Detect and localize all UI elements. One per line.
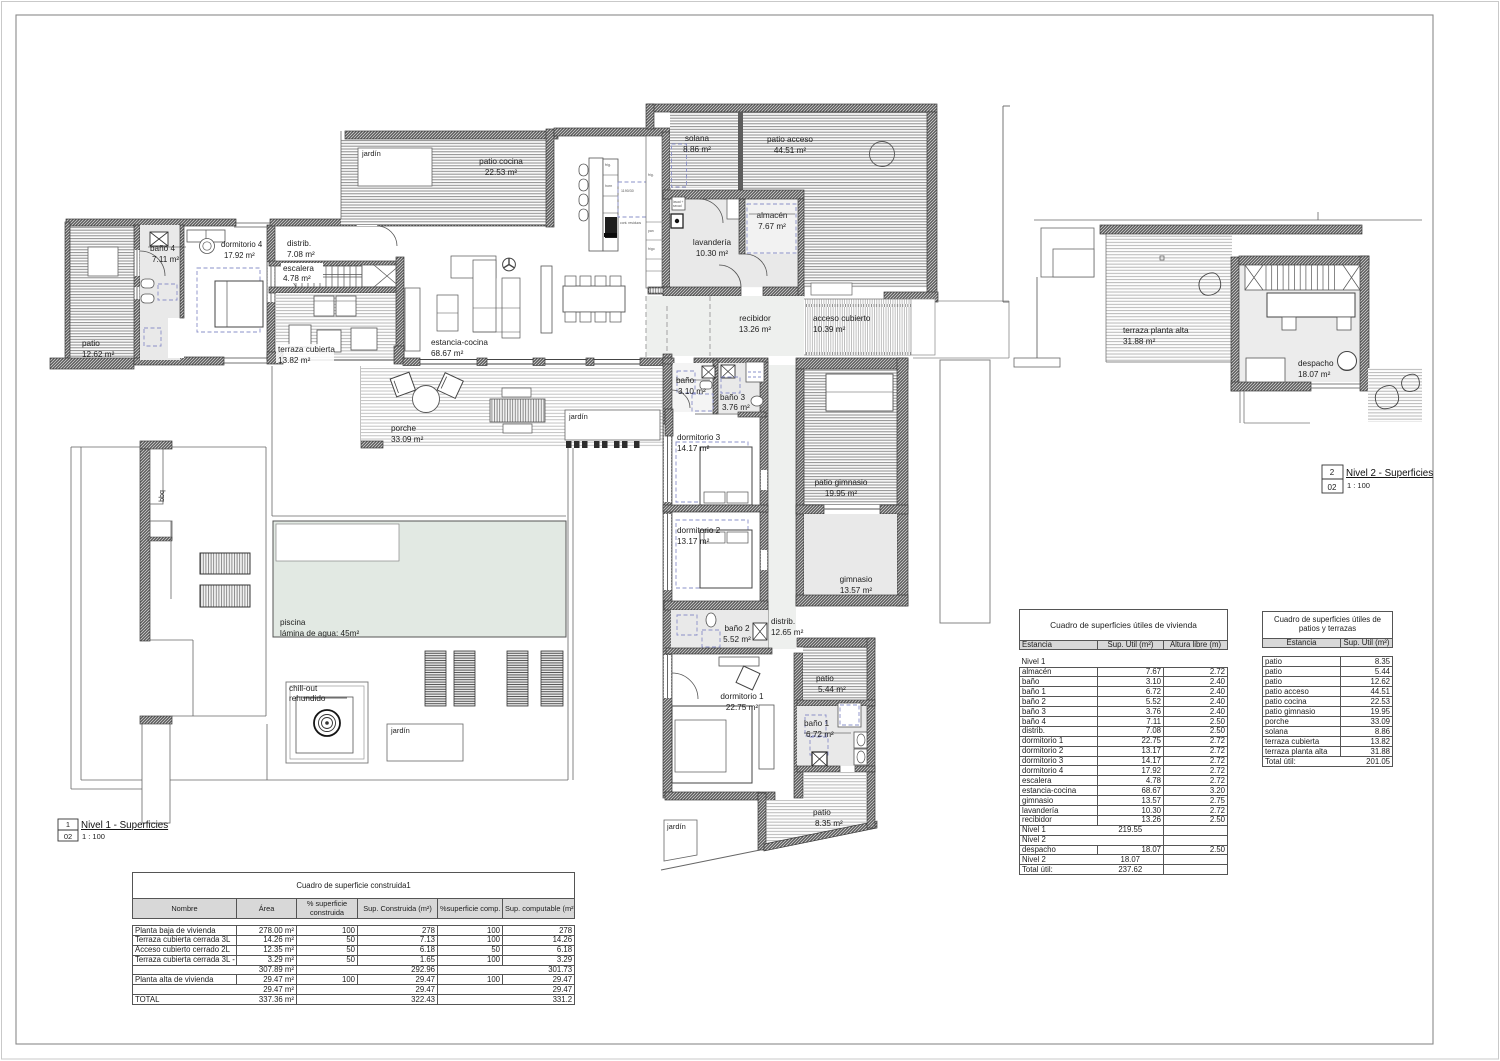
svg-text:10.30 m²: 10.30 m² [696,249,729,258]
svg-text:chill-out: chill-out [289,684,318,693]
svg-text:pan: pan [648,229,654,233]
svg-text:jardín: jardín [666,822,686,831]
svg-text:dormitorio 2: dormitorio 2 [677,526,721,535]
svg-text:baño 3: baño 3 [720,393,745,402]
svg-text:secad: secad [673,204,682,208]
svg-text:13.17 m²: 13.17 m² [677,537,710,546]
svg-text:lámina de agua: 45m²: lámina de agua: 45m² [280,629,359,638]
svg-text:terraza cubierta: terraza cubierta [278,345,335,354]
svg-text:patio: patio [82,339,100,348]
svg-text:patio acceso: patio acceso [767,135,813,144]
svg-text:despacho: despacho [1298,359,1334,368]
svg-text:5.52 m²: 5.52 m² [723,635,751,644]
svg-text:3.10 m²: 3.10 m² [678,387,706,396]
svg-text:solana: solana [685,134,710,143]
svg-text:12.62 m²: 12.62 m² [82,350,115,359]
svg-text:horn: horn [605,184,612,188]
svg-text:patio gimnasio: patio gimnasio [815,478,868,487]
svg-text:6.72 m²: 6.72 m² [806,730,834,739]
svg-text:13.57 m²: 13.57 m² [840,586,873,595]
svg-text:Nivel 1 - Superficies: Nivel 1 - Superficies [81,820,168,831]
svg-text:frig.: frig. [648,173,654,177]
svg-text:patio: patio [816,674,834,683]
svg-text:1190/30: 1190/30 [621,189,634,193]
svg-text:Nivel 2 - Superficies: Nivel 2 - Superficies [1346,468,1433,479]
svg-text:7.11 m²: 7.11 m² [152,255,179,264]
svg-text:jardín: jardín [390,726,410,735]
svg-text:bbq: bbq [159,490,166,502]
svg-text:frigo: frigo [648,247,655,251]
svg-text:7.67 m²: 7.67 m² [758,222,786,231]
svg-text:1 : 100: 1 : 100 [82,832,105,841]
svg-text:terraza planta alta: terraza planta alta [1123,326,1189,335]
svg-text:jardín: jardín [361,149,381,158]
svg-text:distrib.: distrib. [771,617,795,626]
svg-text:5.44 m²: 5.44 m² [818,685,846,694]
svg-text:31.88 m²: 31.88 m² [1123,337,1156,346]
svg-text:17.92 m²: 17.92 m² [224,251,255,260]
svg-text:porche: porche [391,424,416,433]
svg-text:02: 02 [64,832,72,841]
svg-text:escalera: escalera [283,264,314,273]
svg-text:patio: patio [813,808,831,817]
svg-text:frig.: frig. [605,163,611,167]
svg-text:7.08 m²: 7.08 m² [287,250,315,259]
svg-text:4.78 m²: 4.78 m² [283,274,311,283]
svg-text:13.26 m²: 13.26 m² [739,325,772,334]
svg-text:dormitorio 1: dormitorio 1 [720,692,764,701]
svg-text:3.76 m²: 3.76 m² [722,403,750,412]
svg-text:baño: baño [676,376,695,385]
svg-text:cont. residuos: cont. residuos [620,221,641,225]
svg-text:distrib.: distrib. [287,239,311,248]
svg-text:dormitorio 4: dormitorio 4 [221,240,263,249]
svg-text:19.95 m²: 19.95 m² [825,489,858,498]
svg-text:estancia-cocina: estancia-cocina [431,338,488,347]
svg-text:rehundido: rehundido [289,694,326,703]
svg-text:dormitorio 3: dormitorio 3 [677,433,721,442]
svg-text:18.07 m²: 18.07 m² [1298,370,1331,379]
svg-text:gimnasio: gimnasio [840,575,873,584]
svg-text:02: 02 [1328,483,1337,492]
svg-text:baño 1: baño 1 [804,719,829,728]
svg-text:13.82 m²: 13.82 m² [278,356,311,365]
svg-text:acceso cubierto: acceso cubierto [813,314,871,323]
svg-text:1 : 100: 1 : 100 [1347,481,1370,490]
svg-text:44.51 m²: 44.51 m² [774,146,807,155]
svg-text:33.09 m²: 33.09 m² [391,435,424,444]
svg-text:12.65 m²: 12.65 m² [771,628,804,637]
svg-text:recibidor: recibidor [739,314,771,323]
svg-text:10.39 m²: 10.39 m² [813,325,846,334]
svg-text:patio cocina: patio cocina [479,157,523,166]
svg-text:2: 2 [1330,468,1335,477]
svg-text:baño 2: baño 2 [724,624,749,633]
svg-text:22.53 m²: 22.53 m² [485,168,518,177]
svg-text:8.86 m²: 8.86 m² [683,145,711,154]
svg-text:lavandería: lavandería [693,238,732,247]
svg-text:jardín: jardín [568,412,588,421]
svg-text:almacén: almacén [757,211,788,220]
svg-text:1: 1 [66,820,70,829]
svg-text:8.35 m²: 8.35 m² [815,819,843,828]
svg-text:22.75 m²: 22.75 m² [726,703,759,712]
svg-text:baño 4: baño 4 [150,244,175,253]
svg-text:piscina: piscina [280,618,306,627]
svg-text:14.17 m²: 14.17 m² [677,444,710,453]
svg-text:68.67 m²: 68.67 m² [431,349,464,358]
